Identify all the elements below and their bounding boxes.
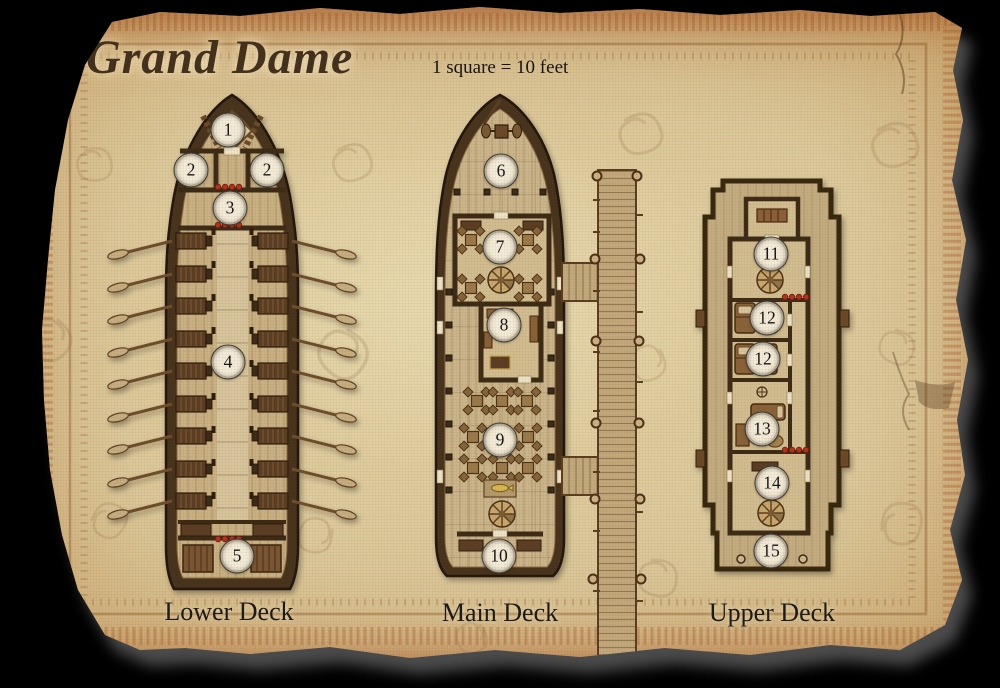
deck-label-main: Main Deck xyxy=(442,598,558,628)
spiral-stair-icon xyxy=(758,500,784,526)
windlass-icon xyxy=(482,124,522,138)
room-marker-4: 4 xyxy=(212,346,245,379)
parchment-shadow: Grand Dame 1 square = 10 feet Lower Deck… xyxy=(0,0,1000,688)
battle-map-image: Grand Dame 1 square = 10 feet Lower Deck… xyxy=(0,0,1000,688)
parchment: Grand Dame 1 square = 10 feet Lower Deck… xyxy=(0,0,1000,688)
room-marker-2-left: 2 xyxy=(175,154,208,187)
room-marker-3: 3 xyxy=(214,192,247,225)
room-marker-12-upper: 12 xyxy=(751,302,784,335)
room-marker-8: 8 xyxy=(488,309,521,342)
spiral-stair-icon xyxy=(488,267,514,293)
hatch-icon xyxy=(757,209,787,222)
room-marker-11: 11 xyxy=(755,238,788,271)
room-marker-13: 13 xyxy=(746,413,779,446)
room-marker-2-right: 2 xyxy=(251,154,284,187)
map-title: Grand Dame xyxy=(86,30,353,85)
cargo-crate-icon xyxy=(183,545,213,572)
lower-deck-plan xyxy=(107,95,357,589)
deck-label-upper: Upper Deck xyxy=(709,598,835,628)
room-marker-15: 15 xyxy=(755,535,788,568)
spiral-stair-icon xyxy=(757,267,783,293)
door-mark xyxy=(224,147,240,155)
deck-label-lower: Lower Deck xyxy=(164,597,293,627)
door-mark xyxy=(493,530,507,537)
cargo-crate-icon xyxy=(251,545,281,572)
room-marker-6: 6 xyxy=(485,155,518,188)
gangplank xyxy=(562,263,602,301)
room-marker-1: 1 xyxy=(212,114,245,147)
captain-table xyxy=(490,356,510,369)
door-mark xyxy=(518,376,531,383)
room-marker-5: 5 xyxy=(221,540,254,573)
room-marker-12-lower: 12 xyxy=(747,343,780,376)
spiral-stair-icon xyxy=(489,501,515,527)
dock-pier xyxy=(562,170,646,658)
room-marker-9: 9 xyxy=(484,424,517,457)
room-marker-7: 7 xyxy=(484,231,517,264)
room-marker-10: 10 xyxy=(483,540,516,573)
map-artwork xyxy=(0,0,1000,688)
room-marker-14: 14 xyxy=(756,467,789,500)
door-mark xyxy=(494,212,508,219)
gangplank xyxy=(562,457,602,495)
scale-note: 1 square = 10 feet xyxy=(432,57,568,79)
